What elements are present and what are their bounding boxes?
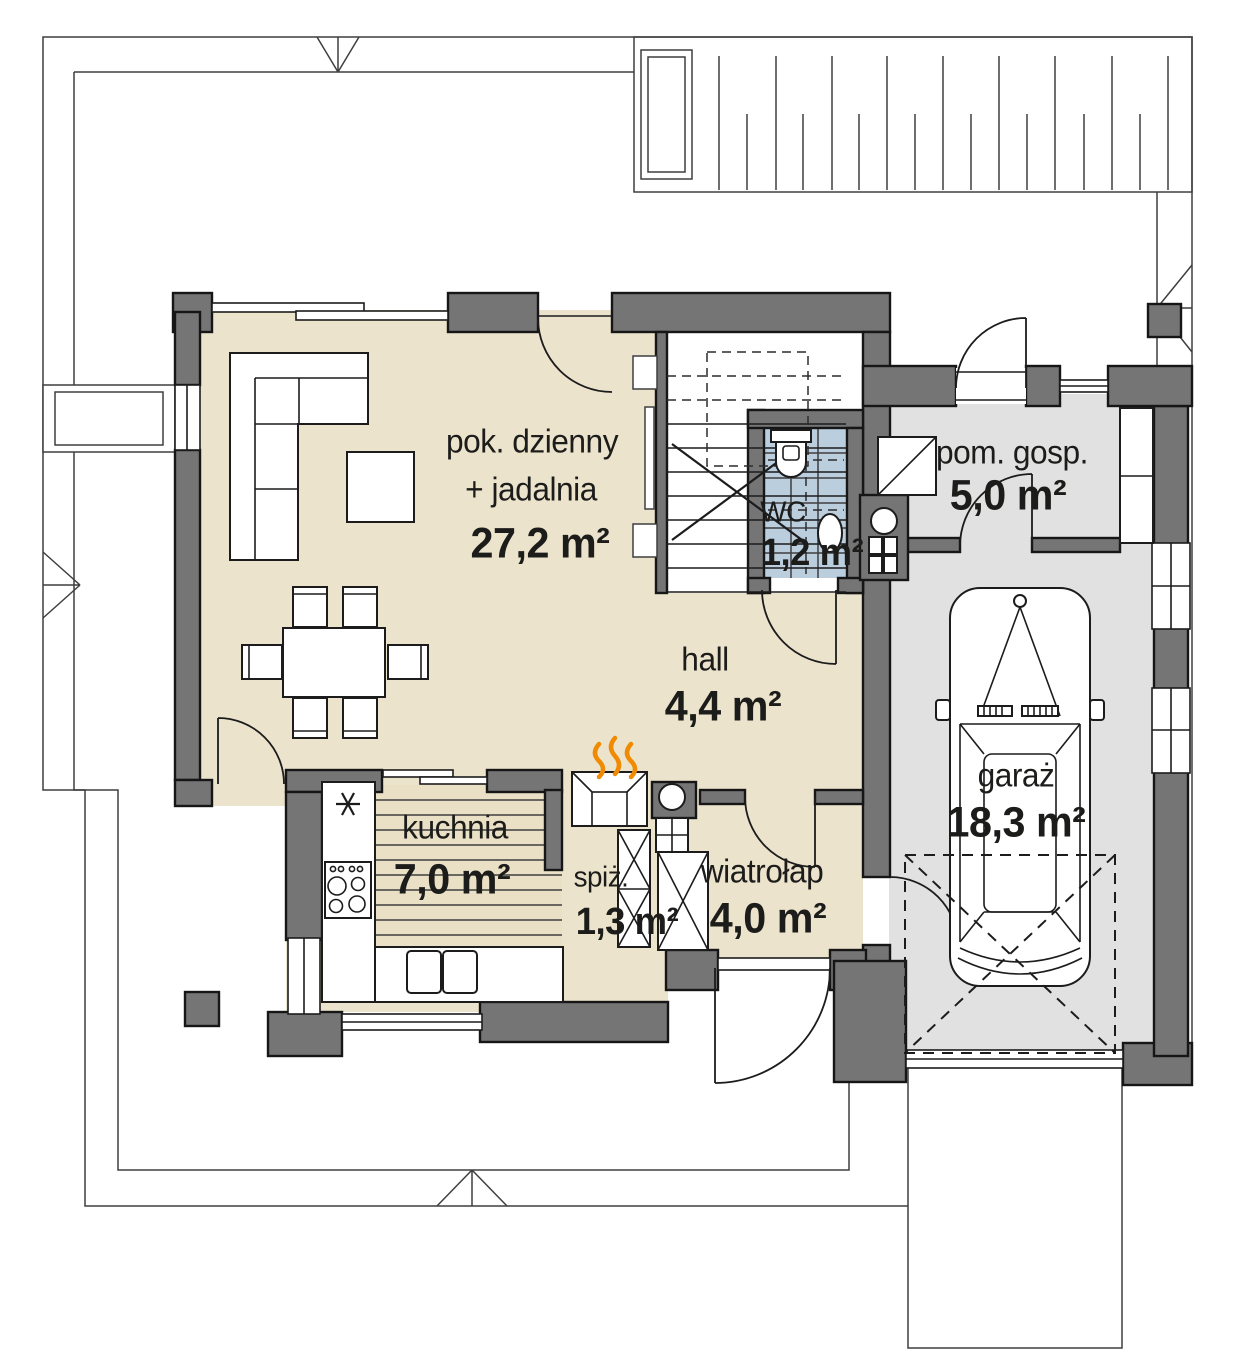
pergola [634, 37, 1192, 192]
chair [388, 645, 428, 679]
vestibule-area: 4,0 m² [710, 898, 826, 941]
boiler [871, 508, 897, 534]
floor-plan-graphic [0, 0, 1254, 1357]
kitchen-name: kuchnia [402, 811, 508, 844]
column-ne [1148, 304, 1181, 337]
hall-area: 4,4 m² [665, 686, 781, 729]
utility-door-threshold [956, 368, 1026, 404]
kitchen-area: 7,0 m² [394, 859, 510, 902]
dining-table [283, 628, 385, 697]
living-room-name2: + jadalnia [465, 473, 597, 506]
kitchen-sink-basin [443, 951, 477, 993]
garage-name: garaż [978, 759, 1055, 792]
vent-stack [659, 784, 685, 810]
wc-area: 1,2 m² [761, 534, 864, 572]
chair [293, 587, 327, 627]
chair [242, 645, 282, 679]
hall-name: hall [681, 643, 728, 676]
vestibule-name: wiatrołap [701, 855, 823, 888]
radiator-strip [645, 407, 654, 509]
entrance-threshold [718, 958, 830, 970]
radiator [633, 356, 657, 389]
coffee-table [347, 452, 414, 522]
window-living-top-b [296, 311, 448, 320]
mirror [1090, 700, 1104, 720]
column-terrace [185, 992, 219, 1026]
pantry-area: 1,3 m² [576, 903, 679, 941]
floor-plan: pok. dzienny + jadalnia 27,2 m² WC 1,2 m… [0, 0, 1254, 1357]
utility-name: pom. gosp. [936, 436, 1088, 469]
stove [325, 862, 371, 918]
kitchen-pass-b [420, 777, 487, 784]
wc-name: WC [760, 499, 805, 528]
living-room-name: pok. dzienny [446, 425, 618, 458]
exterior-planter [43, 385, 175, 452]
door-entrance [715, 968, 830, 1083]
mirror [936, 700, 950, 720]
chair [343, 587, 377, 627]
chair [293, 698, 327, 738]
toilet-tank [771, 430, 811, 442]
chair [343, 698, 377, 738]
garage-area: 18,3 m² [947, 802, 1086, 845]
living-room-area: 27,2 m² [471, 523, 610, 566]
driveway [908, 1064, 1122, 1348]
kitchen-sink-basin [407, 951, 441, 993]
utility-area: 5,0 m² [950, 475, 1066, 518]
kitchen-pass-a [383, 770, 453, 777]
radiator [633, 524, 657, 557]
pantry-name: spiż. [574, 864, 629, 893]
